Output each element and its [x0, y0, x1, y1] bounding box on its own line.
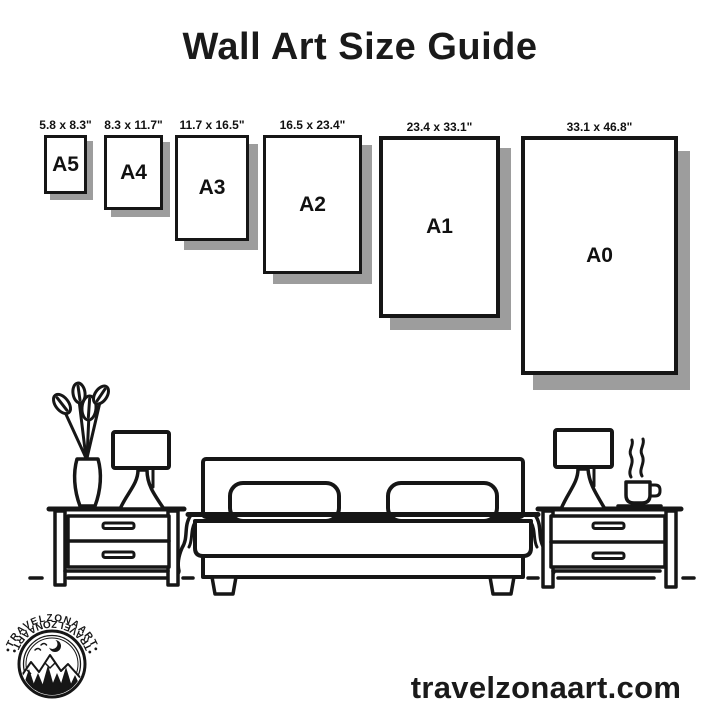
frame-a4: 8.3 x 11.7" A4 [104, 135, 163, 210]
page-title: Wall Art Size Guide [0, 26, 720, 69]
nightstand-icon [49, 509, 184, 585]
frame-letter: A2 [299, 193, 326, 217]
frame-size-label: 33.1 x 46.8" [567, 120, 633, 134]
frame-size-label: 16.5 x 23.4" [280, 118, 346, 132]
plant-vase-icon [50, 382, 111, 506]
frame-letter: A0 [586, 244, 613, 268]
frame-letter: A1 [426, 215, 453, 239]
bedroom-scene [0, 380, 720, 600]
coffee-cup-icon [618, 439, 661, 506]
frame-size-label: 8.3 x 11.7" [104, 118, 162, 132]
frame-a5: 5.8 x 8.3" A5 [44, 135, 87, 194]
frame-letter: A4 [120, 161, 147, 185]
water-icon [14, 686, 90, 714]
frame-a0: 33.1 x 46.8" A0 [521, 136, 678, 375]
table-lamp-icon [113, 432, 169, 509]
frame-a2: 16.5 x 23.4" A2 [263, 135, 362, 274]
nightstand-icon [538, 509, 681, 587]
frame-a1: 23.4 x 33.1" A1 [379, 136, 500, 318]
brand-logo-badge: •TRAVELZONAART• •TRAVELZONAART• [4, 610, 100, 714]
frame-size-label: 5.8 x 8.3" [39, 118, 91, 132]
frame-letter: A5 [52, 153, 79, 177]
frame-letter: A3 [199, 176, 226, 200]
frame-size-label: 23.4 x 33.1" [407, 120, 473, 134]
website-url: travelzonaart.com [376, 670, 716, 706]
table-lamp-icon [555, 430, 612, 509]
frame-a3: 11.7 x 16.5" A3 [175, 135, 249, 241]
double-bed-icon [172, 459, 554, 594]
frame-size-label: 11.7 x 16.5" [179, 118, 244, 132]
